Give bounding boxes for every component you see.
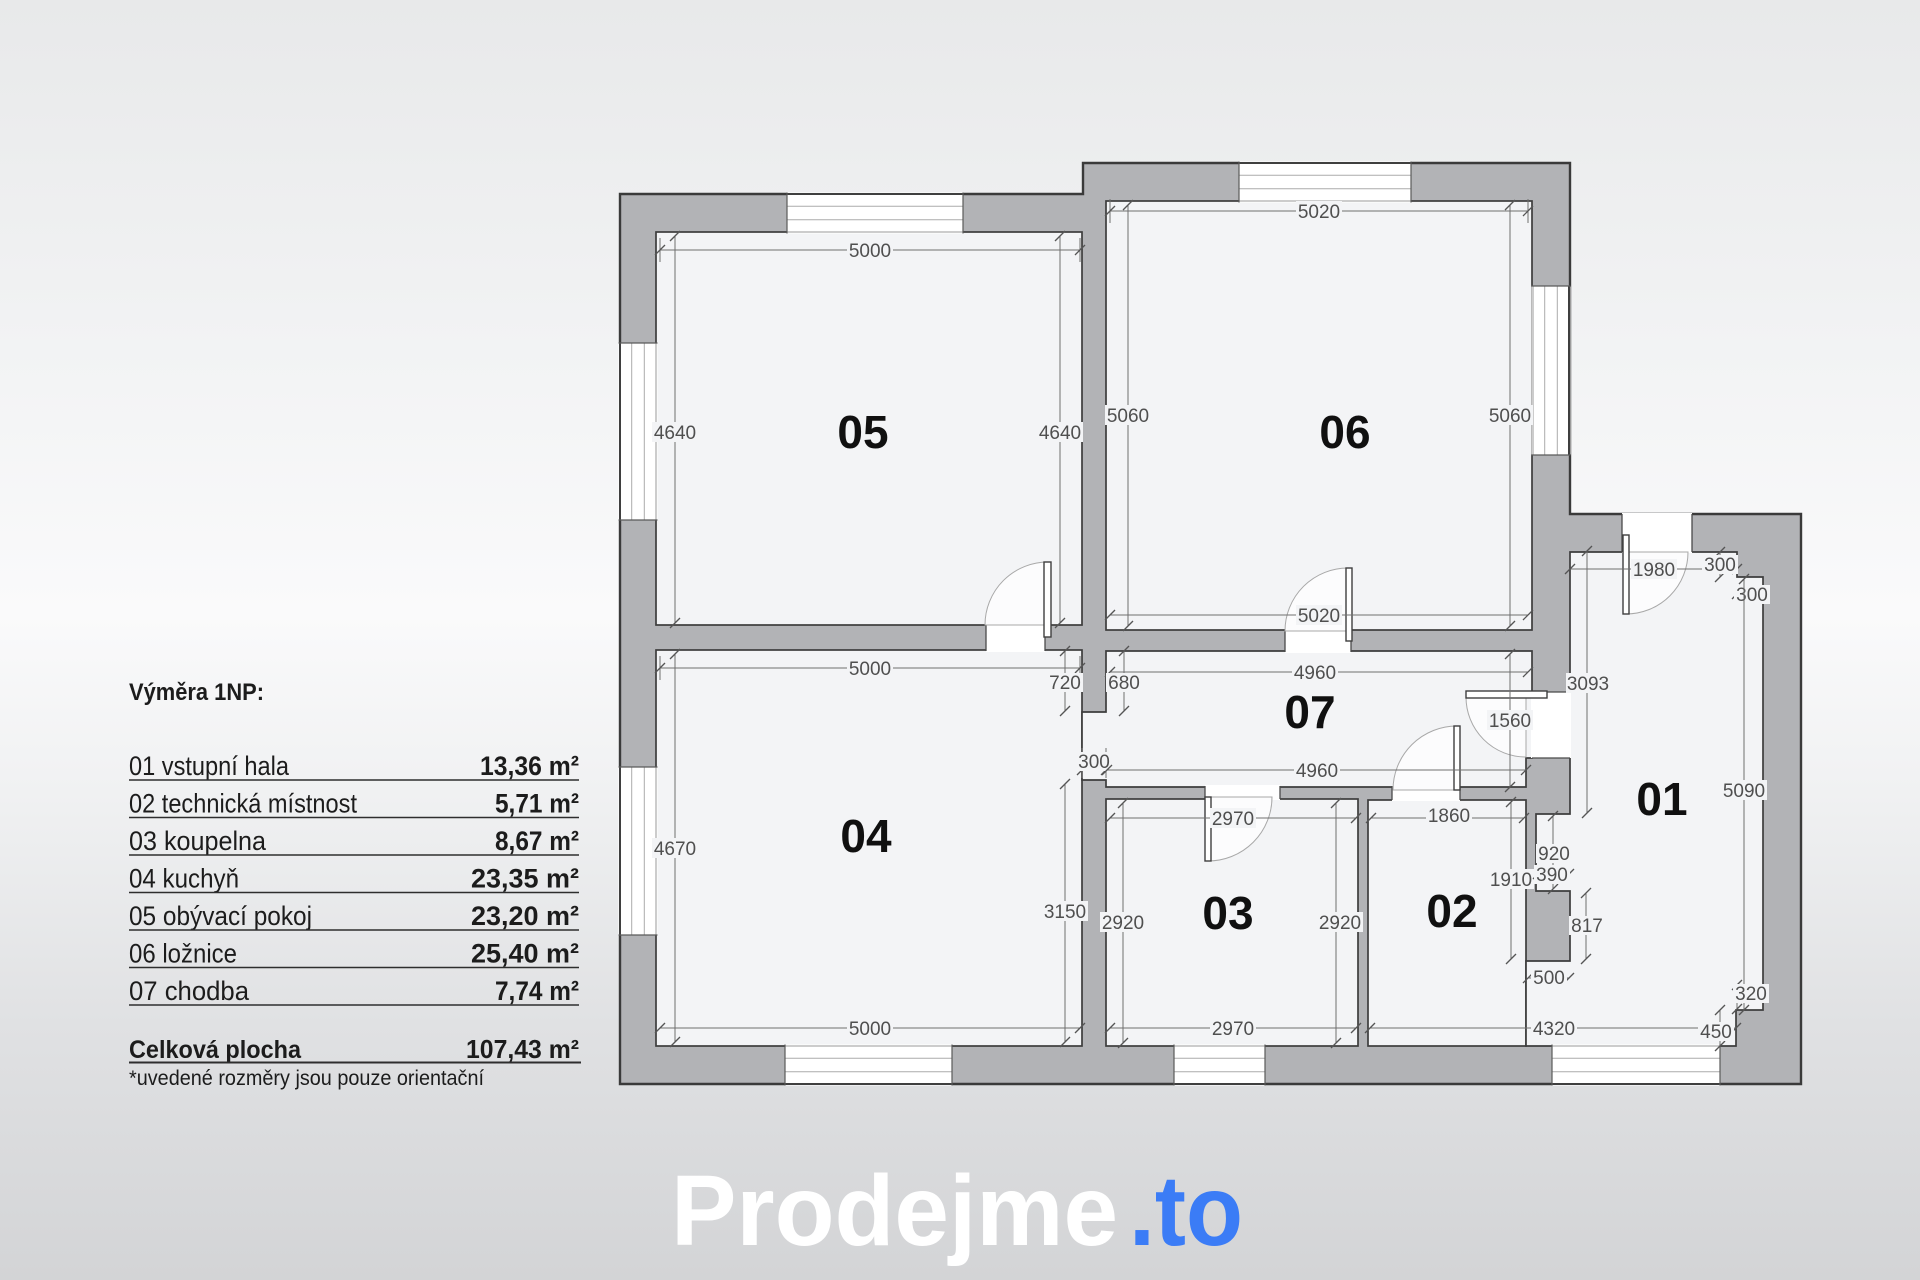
svg-text:1860: 1860 bbox=[1428, 806, 1470, 827]
svg-text:07: 07 bbox=[1284, 686, 1335, 738]
svg-text:*uvedené rozměry jsou pouze or: *uvedené rozměry jsou pouze orientační bbox=[129, 1067, 484, 1090]
svg-text:04: 04 bbox=[840, 810, 892, 862]
svg-text:5060: 5060 bbox=[1107, 406, 1149, 427]
svg-text:5020: 5020 bbox=[1298, 202, 1340, 223]
svg-text:02: 02 bbox=[1426, 885, 1477, 937]
svg-text:5000: 5000 bbox=[849, 1019, 891, 1040]
svg-text:450: 450 bbox=[1700, 1022, 1732, 1043]
svg-text:06: 06 bbox=[1319, 406, 1370, 458]
svg-text:107,43 m²: 107,43 m² bbox=[466, 1034, 579, 1064]
svg-text:4960: 4960 bbox=[1294, 663, 1336, 684]
svg-text:23,35 m²: 23,35 m² bbox=[471, 864, 579, 894]
svg-text:2920: 2920 bbox=[1102, 913, 1144, 934]
svg-text:01: 01 bbox=[1636, 773, 1687, 825]
svg-text:04 kuchyň: 04 kuchyň bbox=[129, 864, 239, 894]
svg-text:4960: 4960 bbox=[1296, 761, 1338, 782]
svg-text:8,67 m²: 8,67 m² bbox=[495, 826, 579, 856]
svg-text:3150: 3150 bbox=[1044, 902, 1086, 923]
svg-text:2970: 2970 bbox=[1212, 809, 1254, 830]
svg-text:05: 05 bbox=[837, 406, 888, 458]
svg-text:680: 680 bbox=[1108, 673, 1140, 694]
svg-text:07 chodba: 07 chodba bbox=[129, 976, 250, 1006]
svg-text:300: 300 bbox=[1736, 585, 1768, 606]
svg-text:2920: 2920 bbox=[1319, 913, 1361, 934]
svg-text:5000: 5000 bbox=[849, 241, 891, 262]
svg-text:5,71 m²: 5,71 m² bbox=[495, 789, 579, 819]
svg-text:300: 300 bbox=[1078, 752, 1110, 773]
svg-text:23,20 m²: 23,20 m² bbox=[471, 901, 579, 931]
svg-text:5060: 5060 bbox=[1489, 406, 1531, 427]
svg-text:.to: .to bbox=[1129, 1155, 1243, 1267]
svg-text:06 ložnice: 06 ložnice bbox=[129, 939, 237, 969]
svg-text:1560: 1560 bbox=[1489, 711, 1531, 732]
svg-text:Prodejme: Prodejme bbox=[671, 1155, 1118, 1267]
svg-text:1910: 1910 bbox=[1490, 870, 1532, 891]
svg-text:5090: 5090 bbox=[1723, 781, 1765, 802]
svg-text:920: 920 bbox=[1538, 844, 1570, 865]
svg-text:300: 300 bbox=[1704, 555, 1736, 576]
svg-text:320: 320 bbox=[1735, 984, 1767, 1005]
svg-text:3093: 3093 bbox=[1567, 674, 1609, 695]
svg-text:Celková plocha: Celková plocha bbox=[129, 1036, 302, 1064]
svg-text:03: 03 bbox=[1202, 887, 1253, 939]
svg-text:13,36 m²: 13,36 m² bbox=[480, 751, 579, 781]
svg-text:Výměra 1NP:: Výměra 1NP: bbox=[129, 679, 264, 706]
svg-text:5020: 5020 bbox=[1298, 606, 1340, 627]
svg-text:720: 720 bbox=[1049, 673, 1081, 694]
svg-text:4320: 4320 bbox=[1533, 1019, 1575, 1040]
svg-text:390: 390 bbox=[1536, 865, 1568, 886]
svg-text:1980: 1980 bbox=[1633, 560, 1675, 581]
svg-text:817: 817 bbox=[1571, 916, 1603, 937]
svg-text:4670: 4670 bbox=[654, 839, 696, 860]
svg-text:5000: 5000 bbox=[849, 659, 891, 680]
svg-text:4640: 4640 bbox=[654, 423, 696, 444]
svg-text:2970: 2970 bbox=[1212, 1019, 1254, 1040]
svg-text:03 koupelna: 03 koupelna bbox=[129, 826, 267, 856]
svg-text:4640: 4640 bbox=[1039, 423, 1081, 444]
svg-text:05 obývací pokoj: 05 obývací pokoj bbox=[129, 901, 312, 931]
svg-text:500: 500 bbox=[1533, 968, 1565, 989]
svg-text:7,74 m²: 7,74 m² bbox=[495, 976, 579, 1006]
svg-text:01 vstupní hala: 01 vstupní hala bbox=[129, 751, 290, 781]
svg-text:02 technická místnost: 02 technická místnost bbox=[129, 789, 357, 819]
svg-text:25,40 m²: 25,40 m² bbox=[471, 939, 579, 969]
